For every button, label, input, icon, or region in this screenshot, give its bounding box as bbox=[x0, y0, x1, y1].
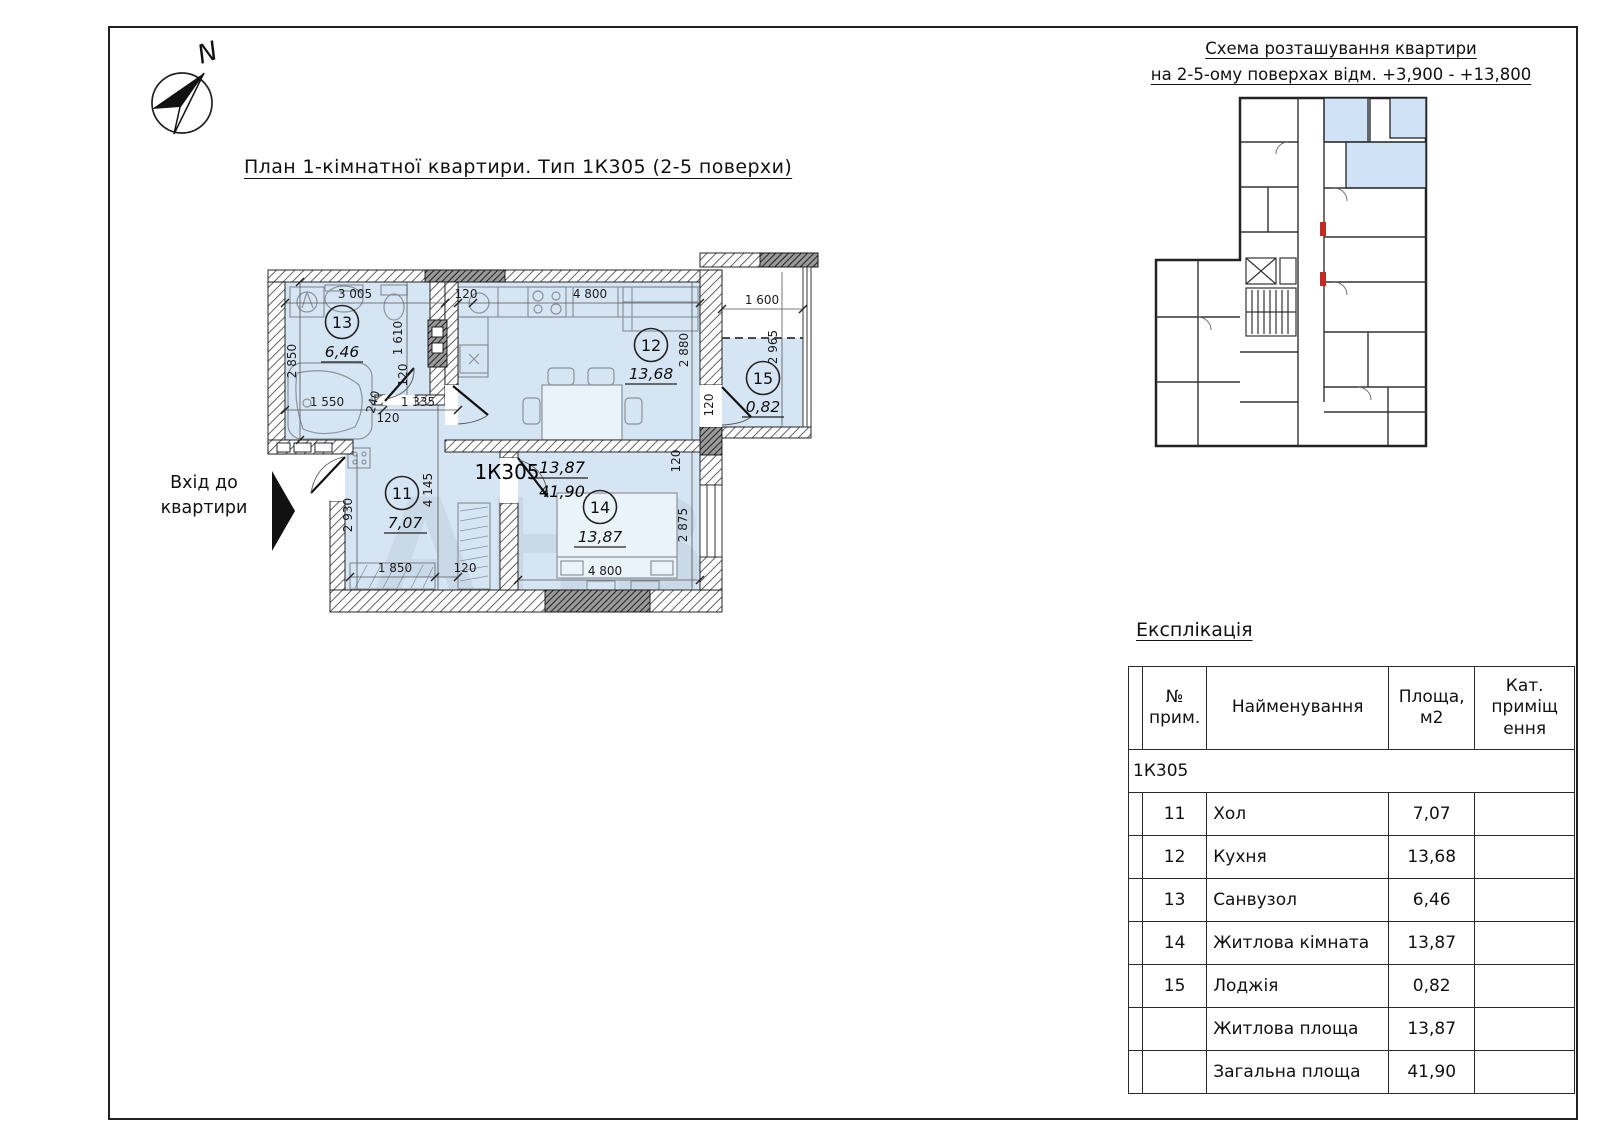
fire-mark bbox=[1320, 222, 1326, 236]
svg-text:1 850: 1 850 bbox=[378, 561, 412, 575]
table-row: 14 Житлова кімната 13,87 bbox=[1129, 922, 1575, 965]
wall-left bbox=[268, 282, 285, 454]
table-row: 13 Санвузол 6,46 bbox=[1129, 879, 1575, 922]
svg-text:1 335: 1 335 bbox=[401, 395, 435, 409]
svg-text:4 145: 4 145 bbox=[421, 473, 435, 507]
col-cat: Кат. приміщ ення bbox=[1475, 667, 1575, 750]
scheme-title: Схема розташування квартири на 2-5-ому п… bbox=[1118, 36, 1564, 87]
col-num: № прим. bbox=[1143, 667, 1207, 750]
entrance-label: Вхід до квартири bbox=[146, 471, 262, 520]
svg-text:120: 120 bbox=[454, 561, 477, 575]
meter-box bbox=[315, 443, 332, 452]
svg-text:120: 120 bbox=[702, 394, 716, 417]
svg-text:2 965: 2 965 bbox=[766, 330, 780, 364]
table-row: Житлова площа 13,87 bbox=[1129, 1008, 1575, 1051]
explication-title: Експлікація bbox=[1136, 619, 1253, 641]
fire-mark bbox=[1320, 272, 1326, 286]
building-scheme bbox=[1128, 92, 1428, 462]
table-header-row: № прим. Найменування Площа, м2 Кат. прим… bbox=[1129, 667, 1575, 750]
svg-text:120: 120 bbox=[455, 287, 478, 301]
svg-text:1К305: 1К305 bbox=[474, 460, 539, 484]
svg-text:13,87: 13,87 bbox=[578, 528, 623, 546]
svg-text:13,87: 13,87 bbox=[539, 458, 586, 477]
table-row: 12 Кухня 13,68 bbox=[1129, 836, 1575, 879]
svg-text:2 930: 2 930 bbox=[341, 498, 355, 532]
svg-text:13,68: 13,68 bbox=[629, 365, 674, 383]
svg-text:2 875: 2 875 bbox=[676, 508, 690, 542]
svg-text:15: 15 bbox=[753, 369, 773, 388]
svg-text:7,07: 7,07 bbox=[388, 514, 423, 532]
svg-text:0,82: 0,82 bbox=[746, 398, 781, 416]
svg-text:14: 14 bbox=[590, 498, 610, 517]
svg-text:6,46: 6,46 bbox=[325, 343, 360, 361]
group-label: 1К305 bbox=[1129, 750, 1575, 793]
svg-text:1 550: 1 550 bbox=[310, 395, 344, 409]
meter-box bbox=[277, 443, 290, 452]
table-row: 15 Лоджія 0,82 bbox=[1129, 965, 1575, 1008]
svg-text:41,90: 41,90 bbox=[539, 482, 585, 501]
explication-table: № прим. Найменування Площа, м2 Кат. прим… bbox=[1128, 666, 1575, 1094]
floor-plan: АНВ bbox=[255, 245, 835, 625]
compass-north-label: N bbox=[194, 40, 222, 71]
wall-right-kitchen bbox=[700, 270, 722, 385]
north-compass: N bbox=[138, 40, 234, 144]
bedroom-window bbox=[700, 485, 722, 557]
svg-text:1 610: 1 610 bbox=[391, 321, 405, 355]
svg-text:1 600: 1 600 bbox=[745, 293, 779, 307]
svg-text:2 880: 2 880 bbox=[677, 333, 691, 367]
table-row: Загальна площа 41,90 bbox=[1129, 1051, 1575, 1094]
table-row: 11 Хол 7,07 bbox=[1129, 793, 1575, 836]
wall-loggia-bottom bbox=[722, 427, 811, 438]
svg-text:4 800: 4 800 bbox=[573, 287, 607, 301]
svg-text:11: 11 bbox=[392, 484, 412, 503]
wall-divider bbox=[445, 440, 700, 452]
dining-table bbox=[542, 385, 622, 440]
svg-text:4 800: 4 800 bbox=[588, 564, 622, 578]
plan-title: План 1-кімнатної квартири. Тип 1К305 (2-… bbox=[244, 156, 792, 178]
scheme-title-line2: на 2-5-ому поверхах відм. +3,900 - +13,8… bbox=[1151, 65, 1531, 84]
wall-bottom bbox=[330, 590, 722, 612]
scheme-title-line1: Схема розташування квартири bbox=[1205, 39, 1477, 58]
svg-text:120: 120 bbox=[669, 450, 683, 473]
col-area: Площа, м2 bbox=[1389, 667, 1475, 750]
svg-text:3 005: 3 005 bbox=[338, 287, 372, 301]
svg-text:13: 13 bbox=[332, 313, 352, 332]
compass-needle-dark bbox=[152, 73, 204, 109]
svg-text:120: 120 bbox=[396, 364, 410, 387]
svg-text:120: 120 bbox=[377, 411, 400, 425]
group-row: 1К305 bbox=[1129, 750, 1575, 793]
entrance-arrow bbox=[272, 471, 295, 551]
svg-text:12: 12 bbox=[641, 336, 661, 355]
drawing-sheet: N План 1-кімнатної квартири. Тип 1К305 (… bbox=[0, 0, 1600, 1132]
col-name: Найменування bbox=[1207, 667, 1389, 750]
svg-text:2 850: 2 850 bbox=[285, 344, 299, 378]
